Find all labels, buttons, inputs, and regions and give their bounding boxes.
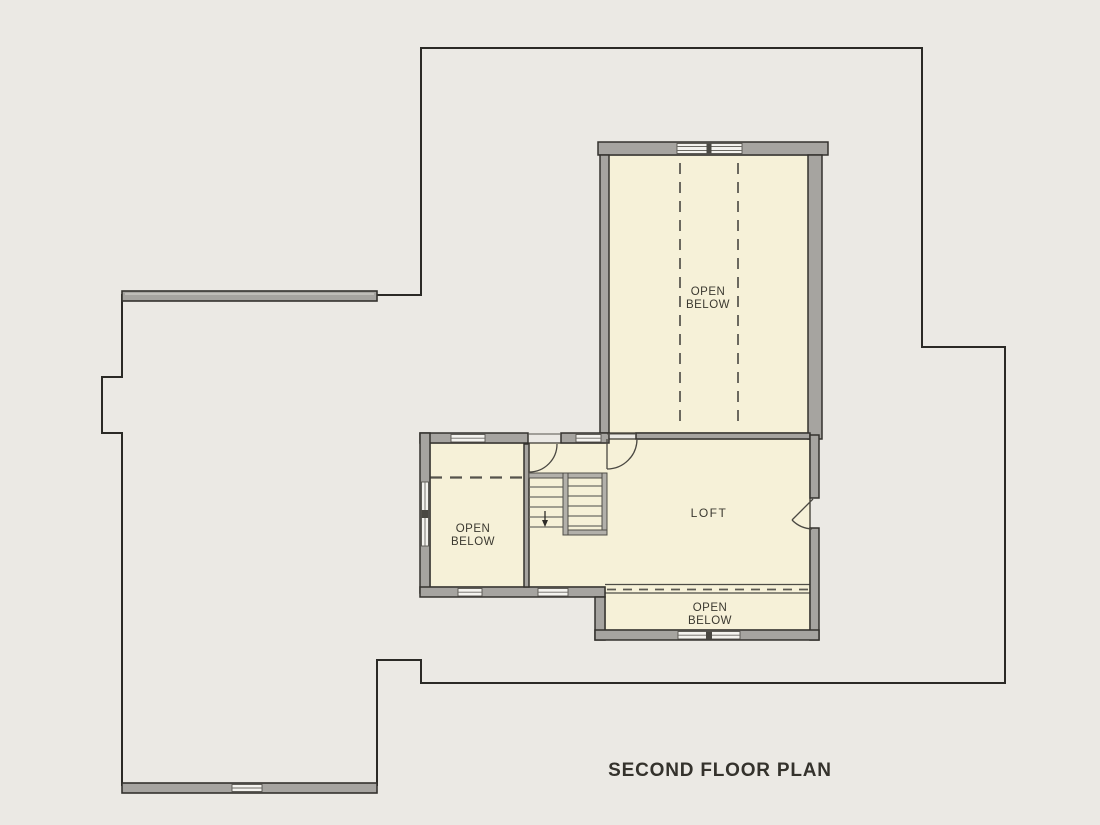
loft-right-wall-lower bbox=[810, 528, 819, 640]
hall-bottom-window-2 bbox=[538, 589, 568, 597]
upper-left-exterior-wall bbox=[122, 291, 377, 301]
upper-room-left-wall bbox=[600, 155, 609, 433]
upper-open-below-label-line2: BELOW bbox=[686, 299, 730, 311]
left-open-below-label-line2: BELOW bbox=[451, 536, 495, 548]
hall-top-window-2 bbox=[576, 435, 601, 443]
floor-plan-canvas: OPEN BELOW OPEN BELOW LOFT OPEN BELOW SE… bbox=[0, 0, 1100, 825]
plan-title: SECOND FLOOR PLAN bbox=[608, 760, 832, 781]
lower-open-below-label-line2: BELOW bbox=[688, 615, 732, 627]
stair-partition-wall bbox=[524, 444, 529, 587]
loft-label: LOFT bbox=[691, 506, 728, 520]
left-open-below-label-line1: OPEN bbox=[456, 523, 491, 535]
lower-room-bottom-window bbox=[678, 632, 740, 640]
lower-open-below-label-line1: OPEN bbox=[693, 602, 728, 614]
loft-top-wall bbox=[636, 433, 810, 439]
window-mullion bbox=[422, 510, 429, 518]
hall-top-window bbox=[451, 435, 485, 443]
floor-plan-page: OPEN BELOW OPEN BELOW LOFT OPEN BELOW SE… bbox=[0, 0, 1100, 825]
hall-left-window bbox=[422, 482, 429, 546]
upper-room-right-wall bbox=[808, 155, 822, 439]
window-mullion bbox=[707, 144, 712, 154]
page-background bbox=[0, 0, 1100, 825]
footprint-window bbox=[232, 785, 262, 792]
window-mullion bbox=[706, 632, 712, 640]
hall-bottom-wall bbox=[420, 587, 605, 597]
upper-open-below-label-line1: OPEN bbox=[691, 286, 726, 298]
upper-room-top-window bbox=[677, 144, 742, 154]
hall-bottom-window-1 bbox=[458, 589, 482, 597]
loft-right-wall-upper bbox=[810, 435, 819, 498]
